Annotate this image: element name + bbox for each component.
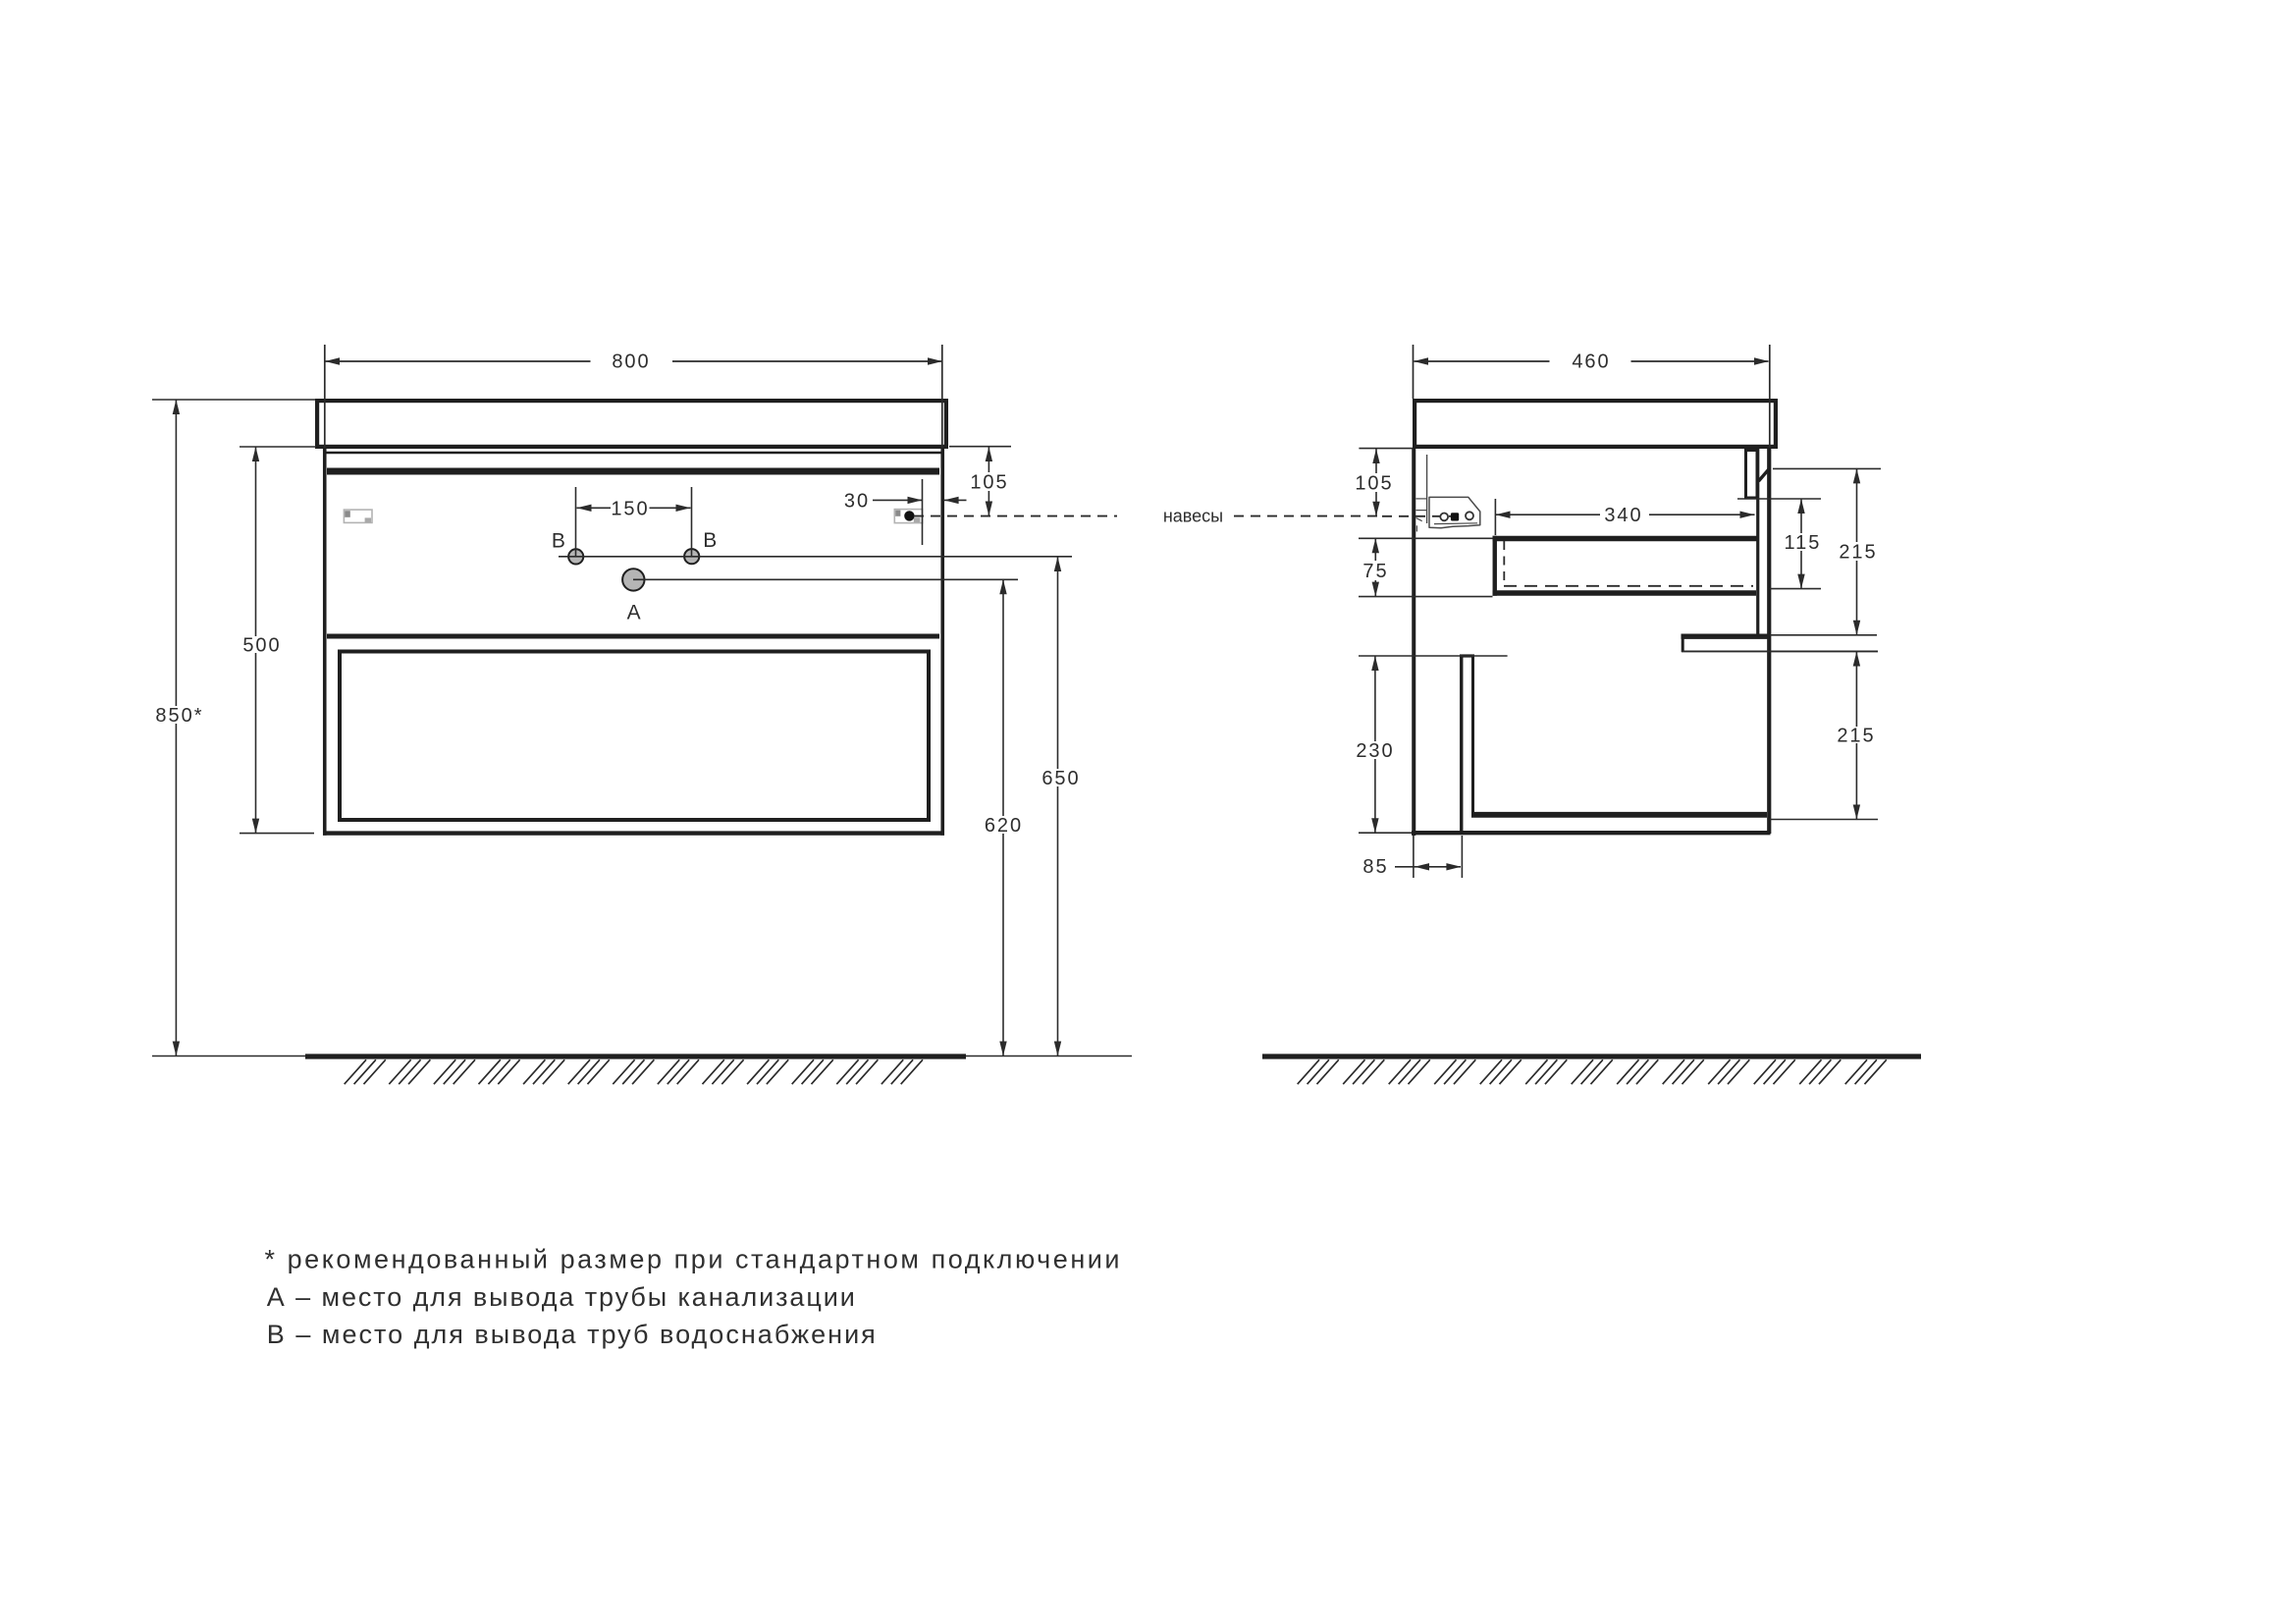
svg-text:30: 30 (844, 490, 870, 512)
svg-text:* рекомендованный размер при с: * рекомендованный размер при стандартном… (265, 1245, 1120, 1274)
svg-text:460: 460 (1572, 352, 1610, 373)
svg-text:105: 105 (1355, 473, 1393, 495)
svg-text:500: 500 (242, 635, 281, 657)
svg-text:85: 85 (1362, 856, 1388, 878)
svg-text:105: 105 (970, 472, 1008, 494)
svg-text:230: 230 (1356, 740, 1394, 762)
svg-text:150: 150 (611, 499, 649, 520)
svg-text:800: 800 (612, 352, 650, 373)
svg-text:215: 215 (1839, 542, 1877, 564)
svg-text:215: 215 (1837, 726, 1875, 747)
svg-text:850*: 850* (155, 705, 203, 727)
svg-text:B: B (703, 529, 717, 552)
svg-text:B: B (552, 529, 565, 552)
svg-text:340: 340 (1604, 505, 1642, 526)
svg-text:А – место для вывода трубы кан: А – место для вывода трубы канализации (267, 1282, 855, 1312)
svg-text:75: 75 (1362, 561, 1388, 582)
svg-text:В – место для вывода труб водо: В – место для вывода труб водоснабжения (267, 1320, 876, 1349)
svg-text:навесы: навесы (1163, 507, 1223, 526)
svg-text:A: A (627, 602, 641, 624)
svg-text:620: 620 (985, 815, 1023, 837)
svg-text:650: 650 (1041, 768, 1080, 789)
svg-text:115: 115 (1785, 532, 1822, 554)
